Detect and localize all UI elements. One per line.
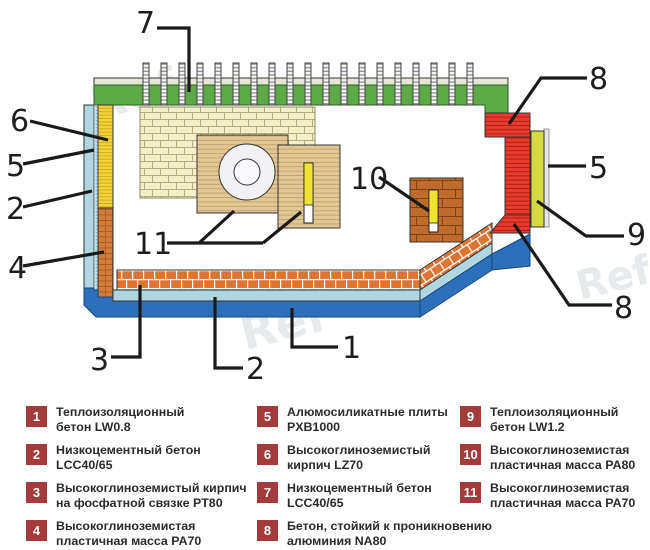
legend-item-label: Высокоглиноземистаяпластичная масса PA70 — [56, 518, 201, 549]
anchor-stud — [287, 63, 293, 105]
legend-item-label-line1: Высокоглиноземистый кирпич — [56, 481, 247, 496]
pa80-block — [410, 178, 463, 242]
anchor-stud — [467, 63, 473, 105]
callout-8-bottom: 8 — [614, 291, 633, 326]
legend-item-8: 8Бетон, стойкий к проникновениюалюминия … — [257, 518, 492, 549]
legend-item-number: 8 — [257, 520, 278, 541]
legend-item-label: Высокоглиноземистый кирпична фосфатной с… — [56, 480, 247, 511]
legend-item-label-line1: Высокоглиноземистая — [490, 481, 635, 496]
callout-5-left: 5 — [6, 149, 25, 184]
na80-concrete-column — [505, 137, 530, 215]
wall-layer-alumosilicate-plates — [94, 105, 98, 290]
wall-layer-lcc-concrete — [84, 105, 94, 288]
furnace-lining-diagram: Ref Ref Ref — [0, 0, 650, 396]
callout-9: 9 — [627, 218, 646, 253]
legend-item-label-line2: бетон LW1.2 — [490, 420, 618, 435]
pa70-block-with-port — [197, 135, 288, 213]
callout-line-11a — [167, 211, 234, 243]
anchor-stud — [377, 63, 383, 105]
legend-item-6: 6Высокоглиноземистыйкирпич LZ70 — [257, 442, 492, 473]
callout-line-5-left — [23, 150, 94, 164]
legend-column-1: 1Теплоизоляционныйбетон LW0.82Низкоцемен… — [26, 404, 247, 550]
legend-item-label-line1: Высокоглиноземистая — [490, 443, 635, 458]
legend-item-label-line2: пластичная масса PA70 — [56, 534, 201, 549]
callout-line-9 — [537, 201, 624, 236]
legend-item-label: Низкоцементный бетонLCC40/65 — [56, 442, 201, 473]
legend-item-number: 9 — [460, 406, 481, 427]
callout-5-right: 5 — [589, 151, 608, 186]
legend-item-1: 1Теплоизоляционныйбетон LW0.8 — [26, 404, 247, 435]
legend-item-4: 4Высокоглиноземистаяпластичная масса PA7… — [26, 518, 247, 549]
legend-item-label-line2: PXB1000 — [287, 420, 448, 435]
legend-item-number: 4 — [26, 520, 47, 541]
anchor-stud — [395, 63, 401, 105]
callout-7: 7 — [136, 6, 155, 41]
anchor-stud — [233, 63, 239, 105]
legend-item-label-line2: бетон LW0.8 — [56, 420, 184, 435]
anchor-stud — [143, 63, 149, 105]
anchor-stud — [431, 63, 437, 105]
callout-10: 10 — [350, 162, 388, 197]
anchor-stud — [449, 63, 455, 105]
right-lw12-concrete-strip — [531, 131, 544, 227]
legend-item-label-line1: Низкоцементный бетон — [287, 481, 432, 496]
legend-item-number: 10 — [460, 444, 481, 465]
legend-item-label: Теплоизоляционныйбетон LW0.8 — [56, 404, 184, 435]
legend-item-label: Высокоглиноземистаяпластичная масса PA70 — [490, 480, 635, 511]
legend-item-label: Высокоглиноземистыйкирпич LZ70 — [287, 442, 431, 473]
legend-item-7: 7Низкоцементный бетонLCC40/65 — [257, 480, 492, 511]
anchor-stud — [323, 63, 329, 105]
furnace-lining-page: Ref Ref Ref — [0, 0, 650, 550]
legend-item-label-line2: LCC40/65 — [56, 458, 201, 473]
callout-4: 4 — [8, 251, 27, 286]
legend-column-3: 9Теплоизоляционныйбетон LW1.210Высокогли… — [460, 404, 635, 518]
legend-item-number: 11 — [460, 482, 481, 503]
anchor-stud — [305, 63, 311, 105]
anchor-stud — [179, 63, 185, 105]
legend-item-label-line2: LCC40/65 — [287, 496, 432, 511]
svg-text:Ref: Ref — [571, 247, 650, 310]
legend-item-number: 3 — [26, 482, 47, 503]
callout-3: 3 — [90, 343, 109, 378]
legend-item-number: 7 — [257, 482, 278, 503]
right-alumosilicate-plate — [544, 129, 549, 227]
legend-item-label: Бетон, стойкий к проникновениюалюминия N… — [287, 518, 492, 549]
legend-item-label-line1: Низкоцементный бетон — [56, 443, 201, 458]
anchor-stud — [359, 63, 365, 105]
callout-1: 1 — [342, 331, 361, 366]
legend-item-label: Алюмосиликатные плитыPXB1000 — [287, 404, 448, 435]
port-inner-circle — [234, 159, 260, 185]
legend-item-number: 6 — [257, 444, 278, 465]
anchor-stud — [341, 63, 347, 105]
legend-item-10: 10Высокоглиноземистаяпластичная масса PA… — [460, 442, 635, 473]
legend-item-label-line2: пластичная масса PA80 — [490, 458, 635, 473]
callout-11: 11 — [134, 227, 172, 262]
legend-item-3: 3Высокоглиноземистый кирпична фосфатной … — [26, 480, 247, 511]
wall-layer-lz70-brick — [98, 105, 113, 208]
legend-item-label-line2: на фосфатной связке PT80 — [56, 496, 247, 511]
legend-item-label-line1: Высокоглиноземистая — [56, 519, 201, 534]
legend-item-label-line1: Высокоглиноземистый — [287, 443, 431, 458]
legend-item-label-line1: Теплоизоляционный — [56, 405, 184, 420]
callout-2-bottom: 2 — [246, 352, 265, 387]
legend-item-number: 5 — [257, 406, 278, 427]
floor-layer-lcc-concrete — [113, 290, 420, 301]
legend-item-label: Теплоизоляционныйбетон LW1.2 — [490, 404, 618, 435]
legend-item-number: 1 — [26, 406, 47, 427]
floor-layer-pt80-bricks — [117, 270, 420, 290]
legend-item-label-line2: алюминия NA80 — [287, 534, 492, 549]
legend-item-label-line1: Теплоизоляционный — [490, 405, 618, 420]
legend-item-label: Низкоцементный бетонLCC40/65 — [287, 480, 432, 511]
roof-top-plate — [94, 78, 508, 85]
legend-item-2: 2Низкоцементный бетонLCC40/65 — [26, 442, 247, 473]
na80-concrete-foot — [490, 215, 530, 233]
pa70-block-with-slot — [278, 145, 340, 228]
legend-column-2: 5Алюмосиликатные плитыPXB10006Высокоглин… — [257, 404, 492, 550]
legend-item-11: 11Высокоглиноземистаяпластичная масса PA… — [460, 480, 635, 511]
anchor-stud — [251, 63, 257, 105]
legend-item-label-line2: пластичная масса PA70 — [490, 496, 635, 511]
callout-6: 6 — [10, 104, 29, 139]
legend-item-label-line1: Алюмосиликатные плиты — [287, 405, 448, 420]
callout-2-left: 2 — [6, 192, 25, 227]
legend-item-label-line2: кирпич LZ70 — [287, 458, 431, 473]
anchor-stud — [161, 63, 167, 105]
anchor-stud — [413, 63, 419, 105]
legend-item-9: 9Теплоизоляционныйбетон LW1.2 — [460, 404, 635, 435]
callout-8-top: 8 — [589, 62, 608, 97]
anchor-stud — [197, 63, 203, 105]
anchor-stud — [215, 63, 221, 105]
slot-yellow-insert — [304, 163, 313, 205]
legend-item-5: 5Алюмосиликатные плитыPXB1000 — [257, 404, 492, 435]
legend-item-label: Высокоглиноземистаяпластичная масса PA80 — [490, 442, 635, 473]
materials-legend: 1Теплоизоляционныйбетон LW0.82Низкоцемен… — [0, 399, 650, 550]
legend-item-label-line1: Бетон, стойкий к проникновению — [287, 519, 492, 534]
anchor-stud — [269, 63, 275, 105]
legend-item-number: 2 — [26, 444, 47, 465]
na80-concrete-top — [485, 113, 530, 137]
slot-yellow-insert — [429, 190, 438, 223]
callout-line-2-left — [23, 191, 92, 207]
